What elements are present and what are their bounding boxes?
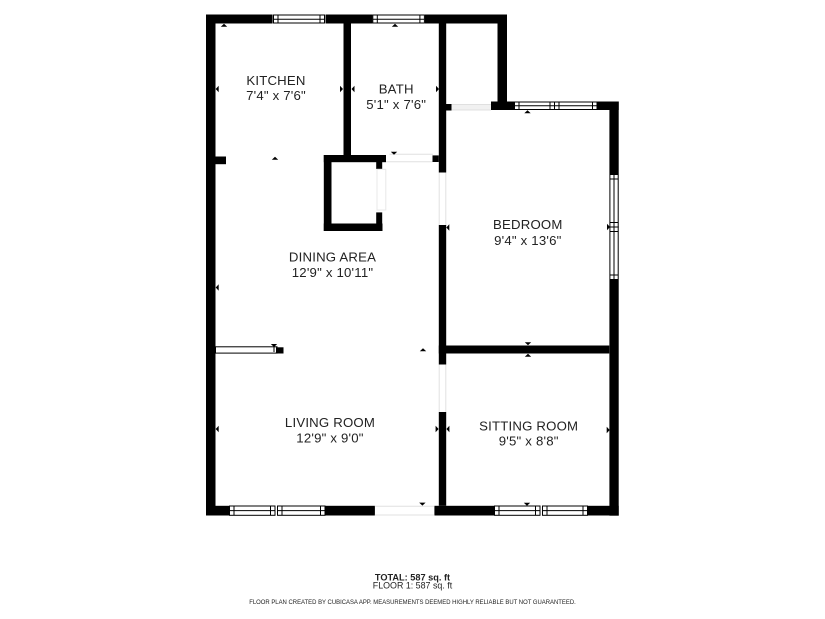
svg-text:5'1" x 7'6": 5'1" x 7'6" xyxy=(366,97,426,112)
svg-text:BEDROOM: BEDROOM xyxy=(493,217,563,232)
svg-text:12'9" x 10'11": 12'9" x 10'11" xyxy=(292,265,374,280)
svg-text:9'4" x 13'6": 9'4" x 13'6" xyxy=(494,233,562,248)
svg-text:FLOOR 1: 587 sq. ft: FLOOR 1: 587 sq. ft xyxy=(373,581,453,591)
svg-text:BATH: BATH xyxy=(379,82,414,97)
svg-text:DINING AREA: DINING AREA xyxy=(289,250,376,265)
svg-text:9'5" x 8'8": 9'5" x 8'8" xyxy=(499,434,559,449)
svg-text:LIVING ROOM: LIVING ROOM xyxy=(285,415,375,430)
svg-text:FLOOR PLAN CREATED BY CUBICASA: FLOOR PLAN CREATED BY CUBICASA APP. MEAS… xyxy=(249,600,576,606)
svg-text:12'9" x 9'0": 12'9" x 9'0" xyxy=(296,431,364,446)
svg-text:KITCHEN: KITCHEN xyxy=(246,73,305,88)
svg-text:7'4" x 7'6": 7'4" x 7'6" xyxy=(246,88,306,103)
svg-text:SITTING ROOM: SITTING ROOM xyxy=(479,418,578,433)
